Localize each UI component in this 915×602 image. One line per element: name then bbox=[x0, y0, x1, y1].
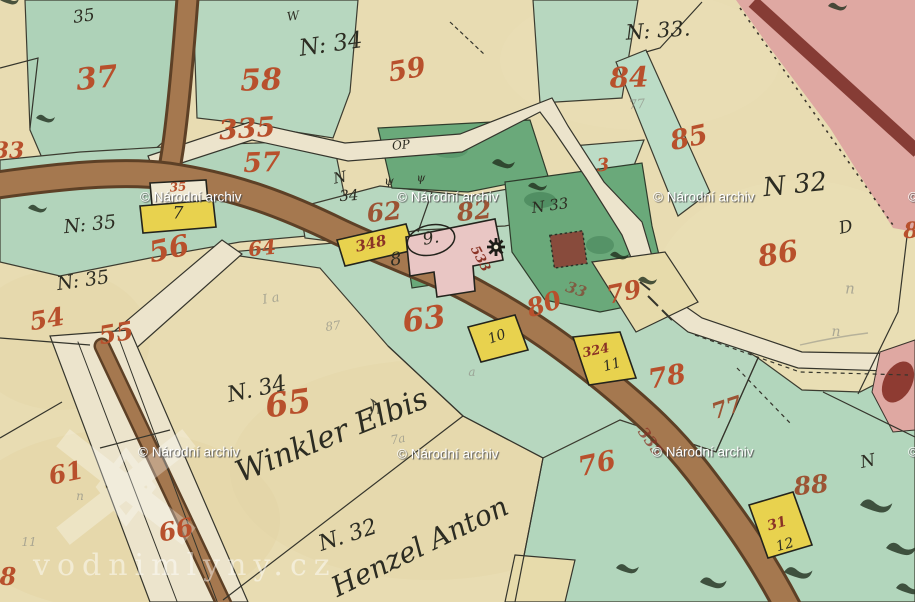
house-7 bbox=[140, 200, 216, 233]
cadastral-map-scan: 3758598485335573338656645455356282807978… bbox=[0, 0, 915, 602]
star-symbol bbox=[487, 238, 505, 256]
parcel-bottom-small bbox=[505, 555, 575, 602]
parcel-58 bbox=[193, 0, 358, 138]
parcel-top-center bbox=[533, 0, 638, 103]
map-drawing-layer bbox=[0, 0, 915, 602]
dotted-building bbox=[550, 231, 587, 268]
